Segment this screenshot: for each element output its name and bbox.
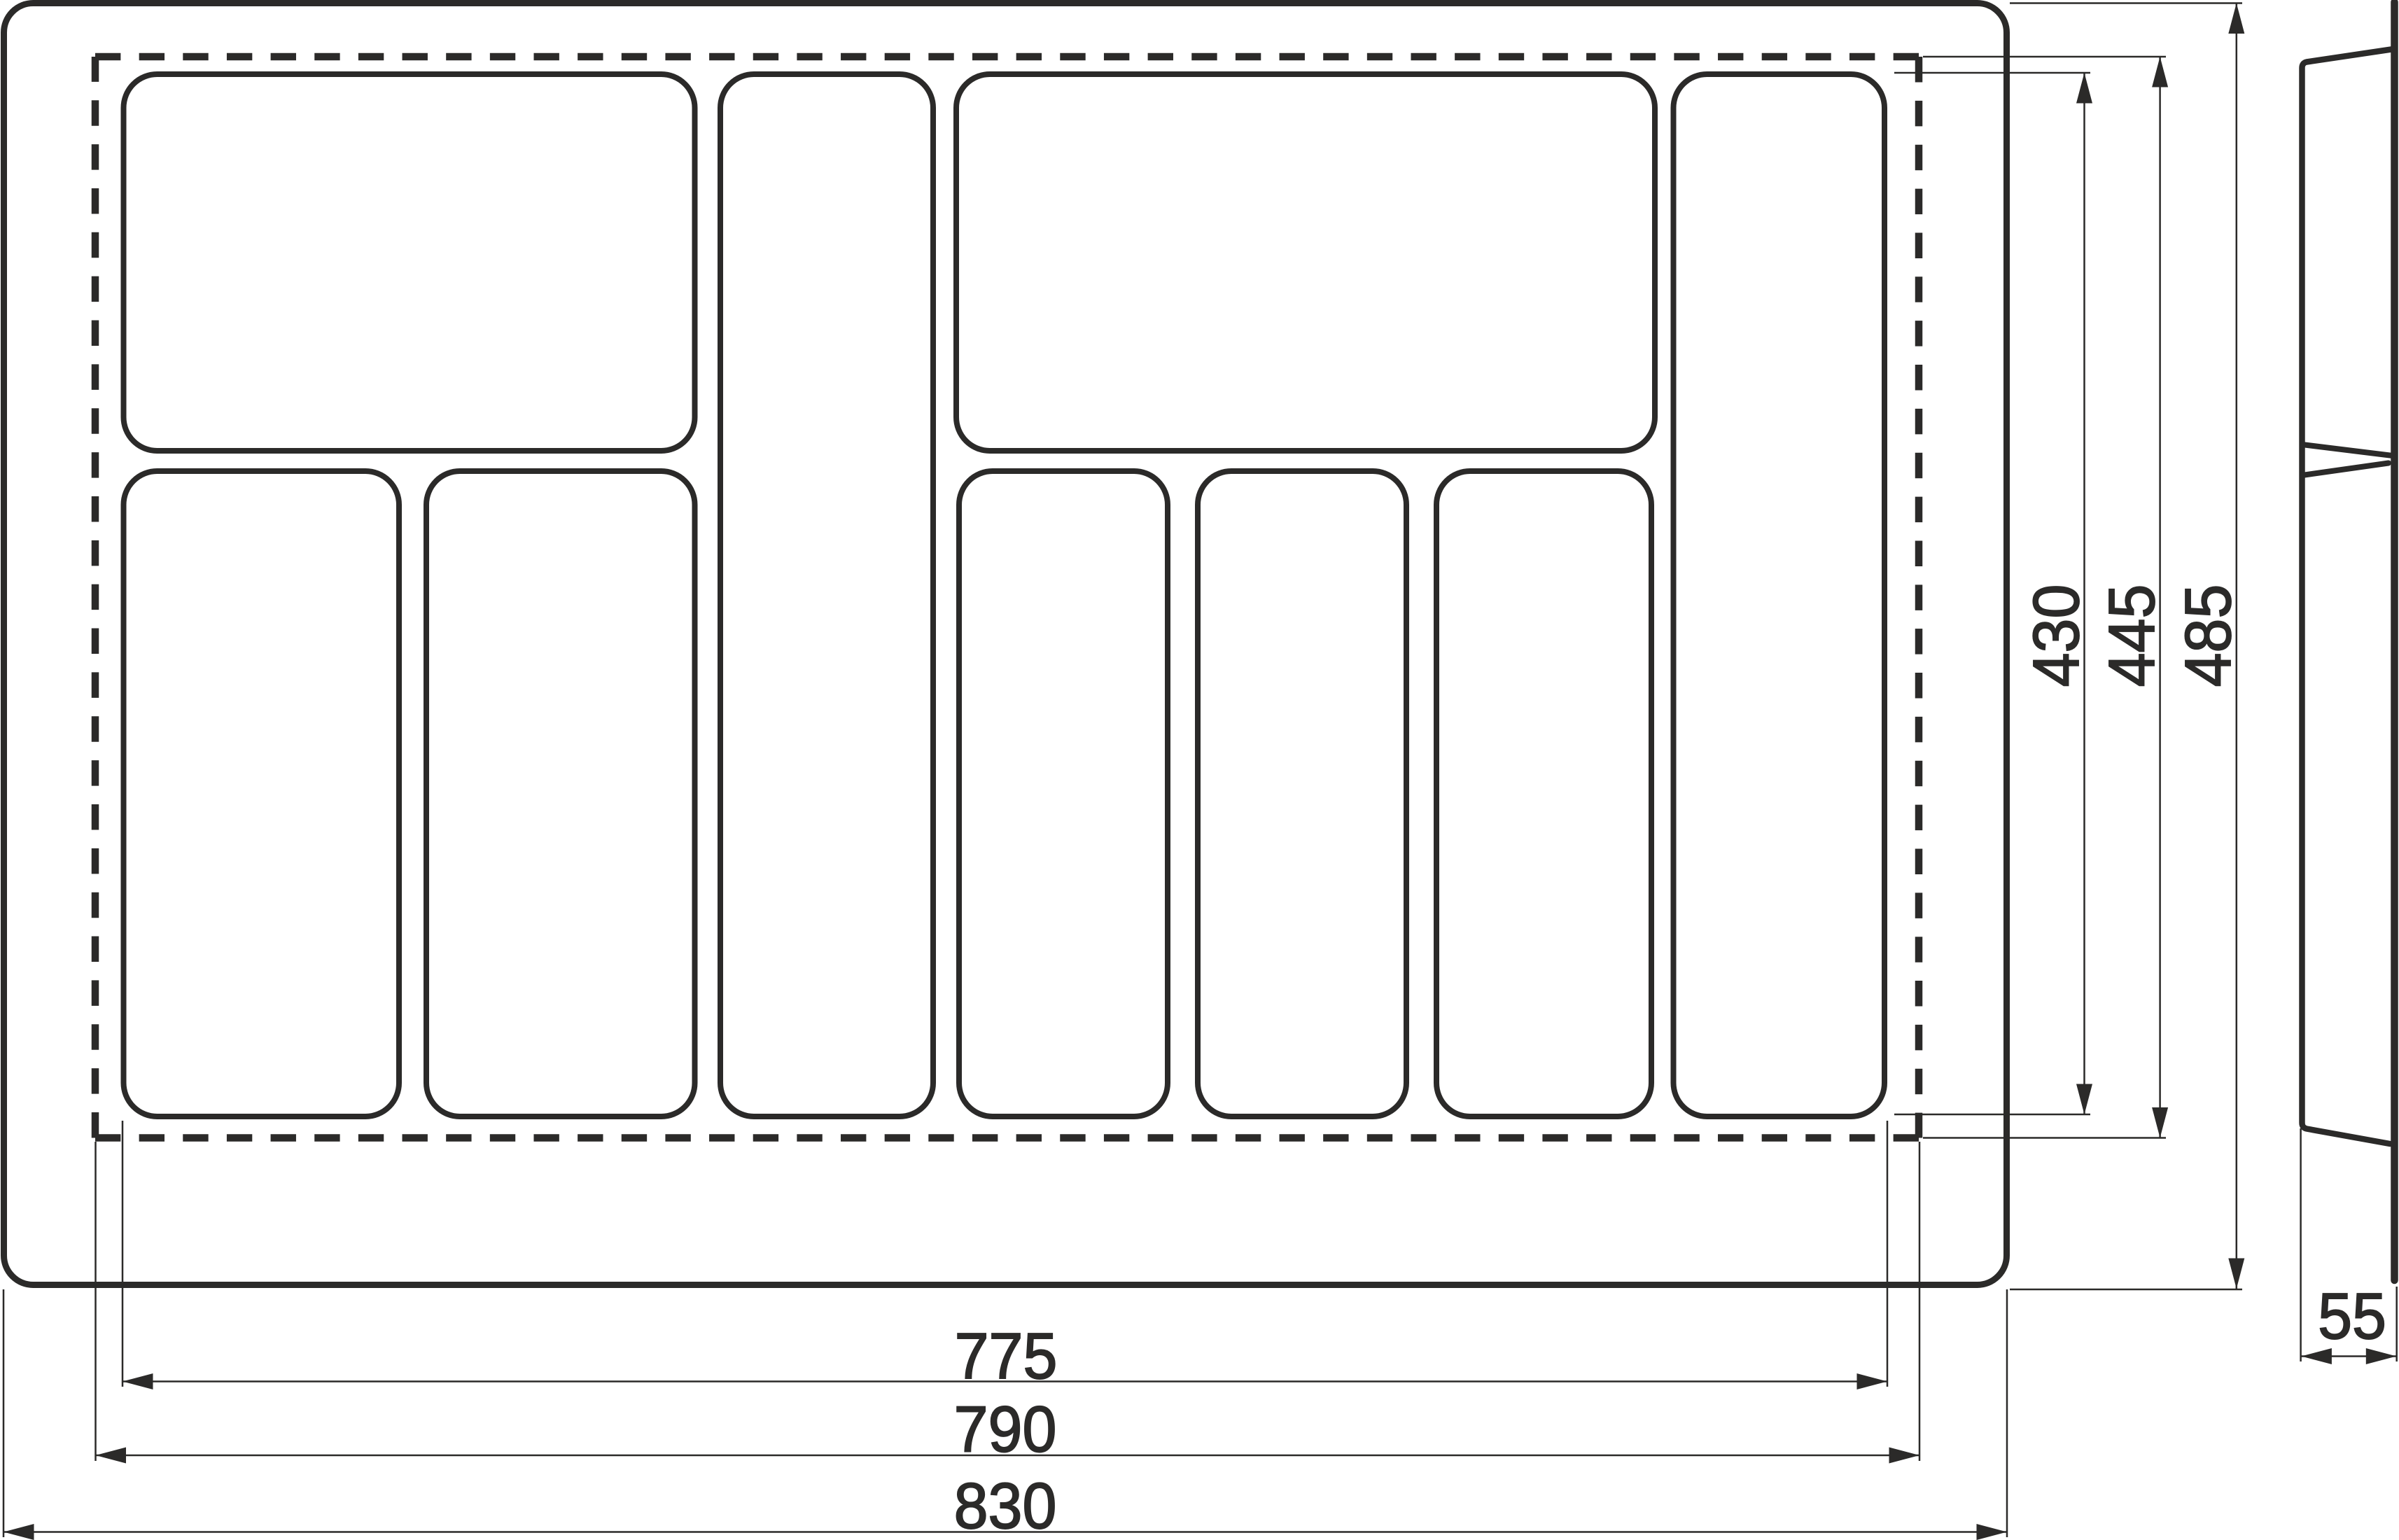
- svg-text:830: 830: [954, 1470, 1057, 1540]
- svg-text:790: 790: [954, 1393, 1057, 1466]
- svg-text:485: 485: [2172, 584, 2245, 687]
- svg-text:430: 430: [2020, 584, 2093, 687]
- svg-text:445: 445: [2096, 584, 2169, 687]
- svg-text:775: 775: [955, 1320, 1058, 1393]
- svg-text:55: 55: [2318, 1280, 2386, 1353]
